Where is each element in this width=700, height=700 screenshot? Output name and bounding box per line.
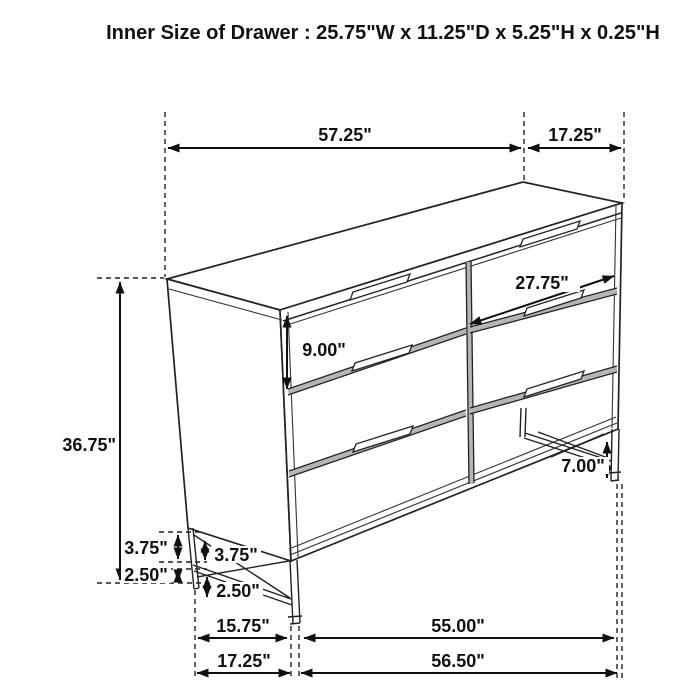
left-side-panel [167,279,291,561]
dim-base-gap-outer-label: 3.75" [124,538,168,558]
dim-overall-height-label: 36.75" [62,435,116,455]
dim-top-depth-label: 17.25" [548,125,602,145]
dim-base-depth-outer-label: 17.25" [217,651,271,671]
dim-base-width-outer-label: 56.50" [431,651,485,671]
dim-base-width-inner-label: 55.00" [431,616,485,636]
dresser-dimension-drawing: Inner Size of Drawer : 25.75"W x 11.25"D… [0,0,700,700]
page-title: Inner Size of Drawer : 25.75"W x 11.25"D… [106,22,660,44]
dimension-diagram-page: Inner Size of Drawer : 25.75"W x 11.25"D… [0,0,700,700]
dim-foot-height-outer-label: 2.50" [124,565,168,585]
dim-top-width-label: 57.25" [318,125,372,145]
dim-drawer-width-label: 27.75" [515,273,569,293]
dim-base-depth-inner-label: 15.75" [216,616,270,636]
dim-base-gap-inner-label: 3.75" [214,545,258,565]
dim-drawer-height-label: 9.00" [302,340,346,360]
dim-leg-height-label: 7.00" [561,456,605,476]
dim-foot-height-inner-label: 2.50" [216,581,260,601]
